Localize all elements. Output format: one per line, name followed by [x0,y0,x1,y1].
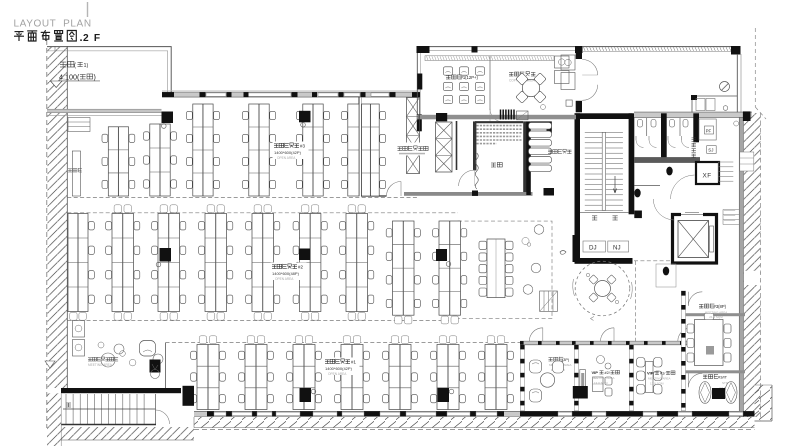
svg-text:OPEN AREA: OPEN AREA [277,156,296,160]
svg-text:13.0 SQM: 13.0 SQM [650,382,664,386]
svg-text:#3/IT: #3/IT [718,375,728,380]
svg-text:MEETING AREA: MEETING AREA [705,310,728,314]
svg-text:#1(12P+): #1(12P+) [461,75,479,80]
svg-text:13.0 SQM: 13.0 SQM [594,381,608,385]
svg-text:MEETING AREA: MEETING AREA [592,376,615,380]
svg-text:1400*600(42P): 1400*600(42P) [274,150,302,155]
svg-text:#3(8P): #3(8P) [714,304,727,309]
svg-text:PF: PF [706,128,712,133]
svg-text:XF: XF [703,173,712,180]
svg-text:1400*600(42P): 1400*600(42P) [325,366,353,371]
svg-text:4.100(: 4.100( [59,73,80,82]
svg-text:SJ: SJ [708,148,713,153]
svg-text:#1: #1 [351,360,356,365]
svg-text:VIP: VIP [592,370,599,375]
svg-text:MEETING AREA: MEETING AREA [648,377,671,381]
svg-text:(3P): (3P) [562,358,570,362]
svg-text:(: ( [74,63,76,69]
svg-text:1400*600(48P): 1400*600(48P) [272,271,300,276]
svg-text:OPEN AREA: OPEN AREA [328,372,347,376]
svg-text:1): 1) [84,63,89,69]
svg-text:#3: #3 [300,144,305,149]
svg-text:VIP: VIP [647,371,654,376]
svg-text:21.5 SQM: 21.5 SQM [709,315,723,319]
svg-text:DJ: DJ [589,245,597,252]
svg-text:NJ: NJ [613,245,621,252]
svg-text:OPEN AREA: OPEN AREA [275,277,294,281]
svg-text:LAYOUT PLAN: LAYOUT PLAN [14,19,92,30]
svg-text:MEETING AREA: MEETING AREA [88,363,113,367]
svg-text:): ) [94,75,96,82]
svg-text:2 F: 2 F [83,33,101,44]
svg-text:#2: #2 [298,265,303,270]
